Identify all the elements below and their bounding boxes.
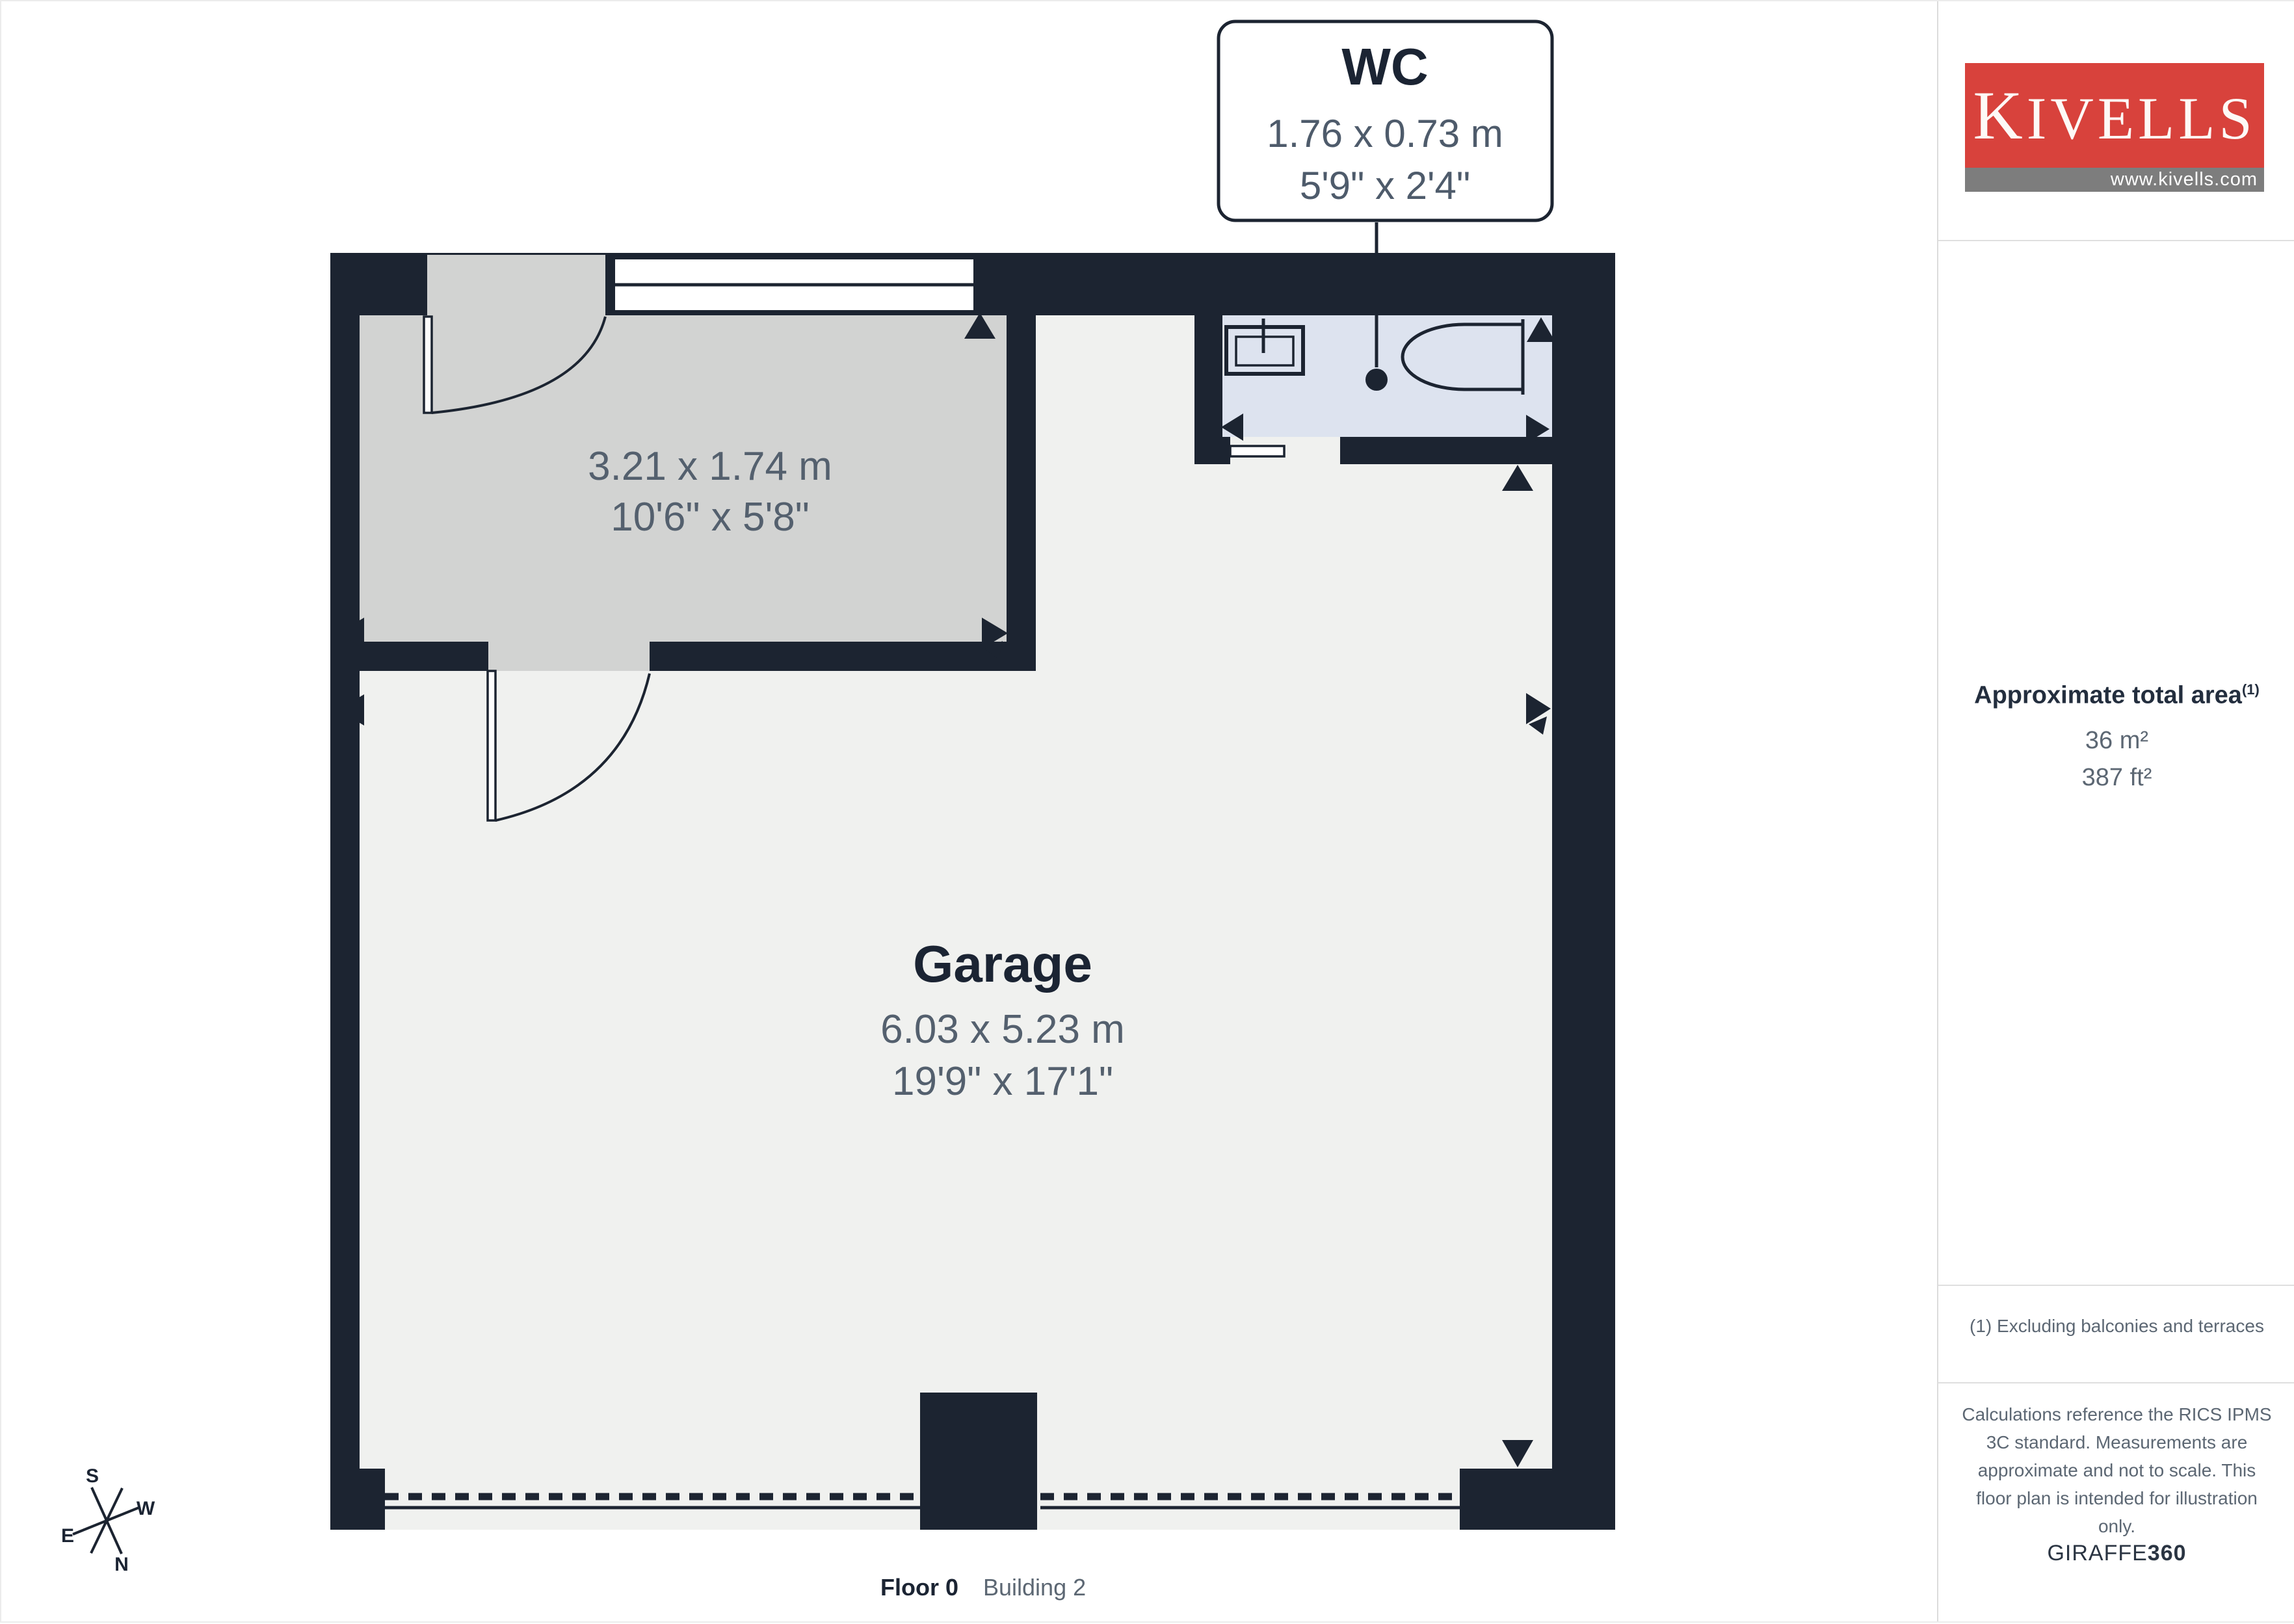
wall-garage-door-pillar [920,1393,1037,1530]
kivells-logo-red-box: KIVELLS [1965,63,2264,168]
area-title: Approximate total area(1) [1938,681,2294,710]
garage-room-dims-ft: 19'9" x 17'1" [892,1059,1113,1104]
window [613,257,975,312]
wc-door-leaf [1230,446,1284,456]
kivells-logo-url-bar: www.kivells.com [1965,168,2264,192]
compass-icon: S W E N [61,1465,155,1575]
wall-entrance-bottom-right [650,642,1036,671]
wall-entrance-bottom-left [360,642,488,671]
garage-room-title: Garage [913,935,1092,993]
info-sidebar: KIVELLS www.kivells.com Approximate tota… [1937,1,2294,1621]
wc-callout: WC 1.76 x 0.73 m 5'9" x 2'4" [1219,21,1552,220]
area-sqft: 387 ft² [1938,764,2294,792]
wall-bottom-left-block [330,1469,385,1530]
kivells-logo-text: KIVELLS [1973,81,2256,150]
area-title-text: Approximate total area [1974,682,2242,709]
wc-callout-dims-m: 1.76 x 0.73 m [1267,112,1503,155]
wall-entrance-right [1007,313,1036,671]
building-label: Building 2 [983,1574,1086,1601]
area-title-superscript: (1) [2242,681,2260,698]
compass-east: E [61,1525,74,1547]
kivells-logo: KIVELLS www.kivells.com [1965,63,2264,192]
kivells-logo-url: www.kivells.com [2111,169,2264,190]
sidebar-divider [1938,240,2294,241]
entrance-room-dims-m: 3.21 x 1.74 m [588,444,832,489]
sidebar-divider [1938,1382,2294,1383]
giraffe360-num: 360 [2148,1541,2187,1565]
callout-anchor-dot [1365,369,1388,391]
disclaimer-text: Calculations reference the RICS IPMS 3C … [1938,1400,2294,1540]
garage-room-dims-m: 6.03 x 5.23 m [880,1007,1125,1052]
giraffe360-name: GIRAFFE [2047,1541,2147,1565]
wc-callout-dims-ft: 5'9" x 2'4" [1300,164,1470,207]
giraffe360-brand: GIRAFFE360 [1938,1541,2294,1566]
wall-left [330,253,360,1530]
area-footnote: (1) Excluding balconies and terraces [1938,1316,2294,1337]
wall-right [1552,253,1615,1530]
entrance-exterior-door-opening [427,255,605,315]
compass-west: W [137,1498,155,1519]
wc-callout-title: WC [1341,38,1428,96]
compass-north: N [114,1554,129,1575]
wall-wc-bottom-right [1340,437,1552,464]
wall-bottom-right-block [1460,1469,1615,1530]
sidebar-divider [1938,1285,2294,1286]
approximate-area-block: Approximate total area(1) 36 m² 387 ft² [1938,681,2294,792]
wall-wc-bottom-left [1194,437,1230,464]
entrance-garage-door-opening [488,642,650,671]
area-sqm: 36 m² [1938,727,2294,755]
floor-label: Floor 0 [880,1574,958,1601]
entrance-room-dims-ft: 10'6" x 5'8" [611,495,810,540]
compass-south: S [86,1465,99,1487]
